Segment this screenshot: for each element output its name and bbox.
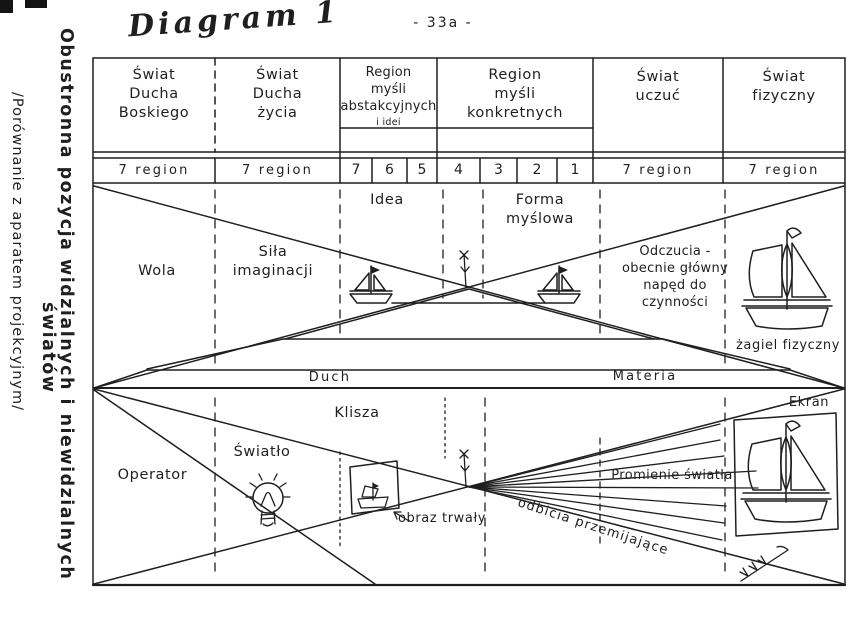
region-cell: 7 region: [93, 162, 215, 179]
region-cell: 4: [437, 161, 480, 179]
header-swiat-uczuc: Świat uczuć: [593, 68, 723, 106]
label-klisza: Klisza: [318, 404, 396, 423]
axis-marker-icon: [460, 450, 469, 487]
feathered-arrow-icon: [740, 546, 788, 581]
region-cell: 3: [480, 161, 517, 179]
region-cell: 7: [340, 161, 372, 179]
axis-marker-icon: [460, 251, 469, 288]
label-wola: Wola: [107, 262, 207, 281]
label-materia: Materia: [590, 368, 700, 385]
region-cell: 2: [517, 161, 557, 179]
sailboat-icon: [538, 266, 580, 303]
label-operator: Operator: [105, 466, 200, 485]
sailboat-icon: [742, 228, 832, 329]
header-swiat-fizyczny: Świat fizyczny: [723, 68, 845, 106]
region-cell: 7 region: [215, 162, 340, 179]
header-swiat-ducha-zycia: Świat Ducha życia: [215, 66, 340, 123]
label-zagiel-fizyczny: żagiel fizyczny: [733, 337, 843, 354]
label-idea: Idea: [352, 191, 422, 210]
sailboat-icon: [350, 266, 392, 303]
label-obraz-trwaly: obraz trwały: [396, 510, 488, 527]
axis-band-lines: [94, 370, 844, 388]
table-grid: [93, 58, 845, 585]
region-cell: 1: [557, 161, 593, 179]
header-region-abstrakcyjnych-sublabel: i idei: [340, 117, 437, 130]
region-cell: 7 region: [723, 162, 845, 179]
header-region-mysli-konkretnych: Region myśli konkretnych: [437, 66, 593, 123]
label-odczucia: Odczucia - obecnie główny napęd do czynn…: [612, 243, 738, 312]
label-swiatlo: Światło: [222, 443, 302, 462]
label-sila-imaginacji: Siła imaginacji: [223, 243, 323, 281]
label-ekran: Ekran: [778, 394, 840, 411]
header-region-mysli-abstrakcyjnych: Region myśli abstakcyjnych: [340, 64, 437, 115]
region-cell: 5: [407, 161, 437, 179]
region-cell: 7 region: [593, 162, 723, 179]
header-swiat-ducha-boskiego: Świat Ducha Boskiego: [93, 66, 215, 123]
lightbulb-icon: [246, 474, 290, 526]
label-forma-myslowa: Forma myślowa: [495, 191, 585, 229]
label-duch: Duch: [275, 369, 385, 386]
scanned-diagram-page: Diagram 1 - 33a - Obustronna pozycja wid…: [0, 0, 857, 617]
region-cell: 6: [372, 161, 407, 179]
label-promienie-swiatla: Promienie światła: [586, 467, 758, 484]
